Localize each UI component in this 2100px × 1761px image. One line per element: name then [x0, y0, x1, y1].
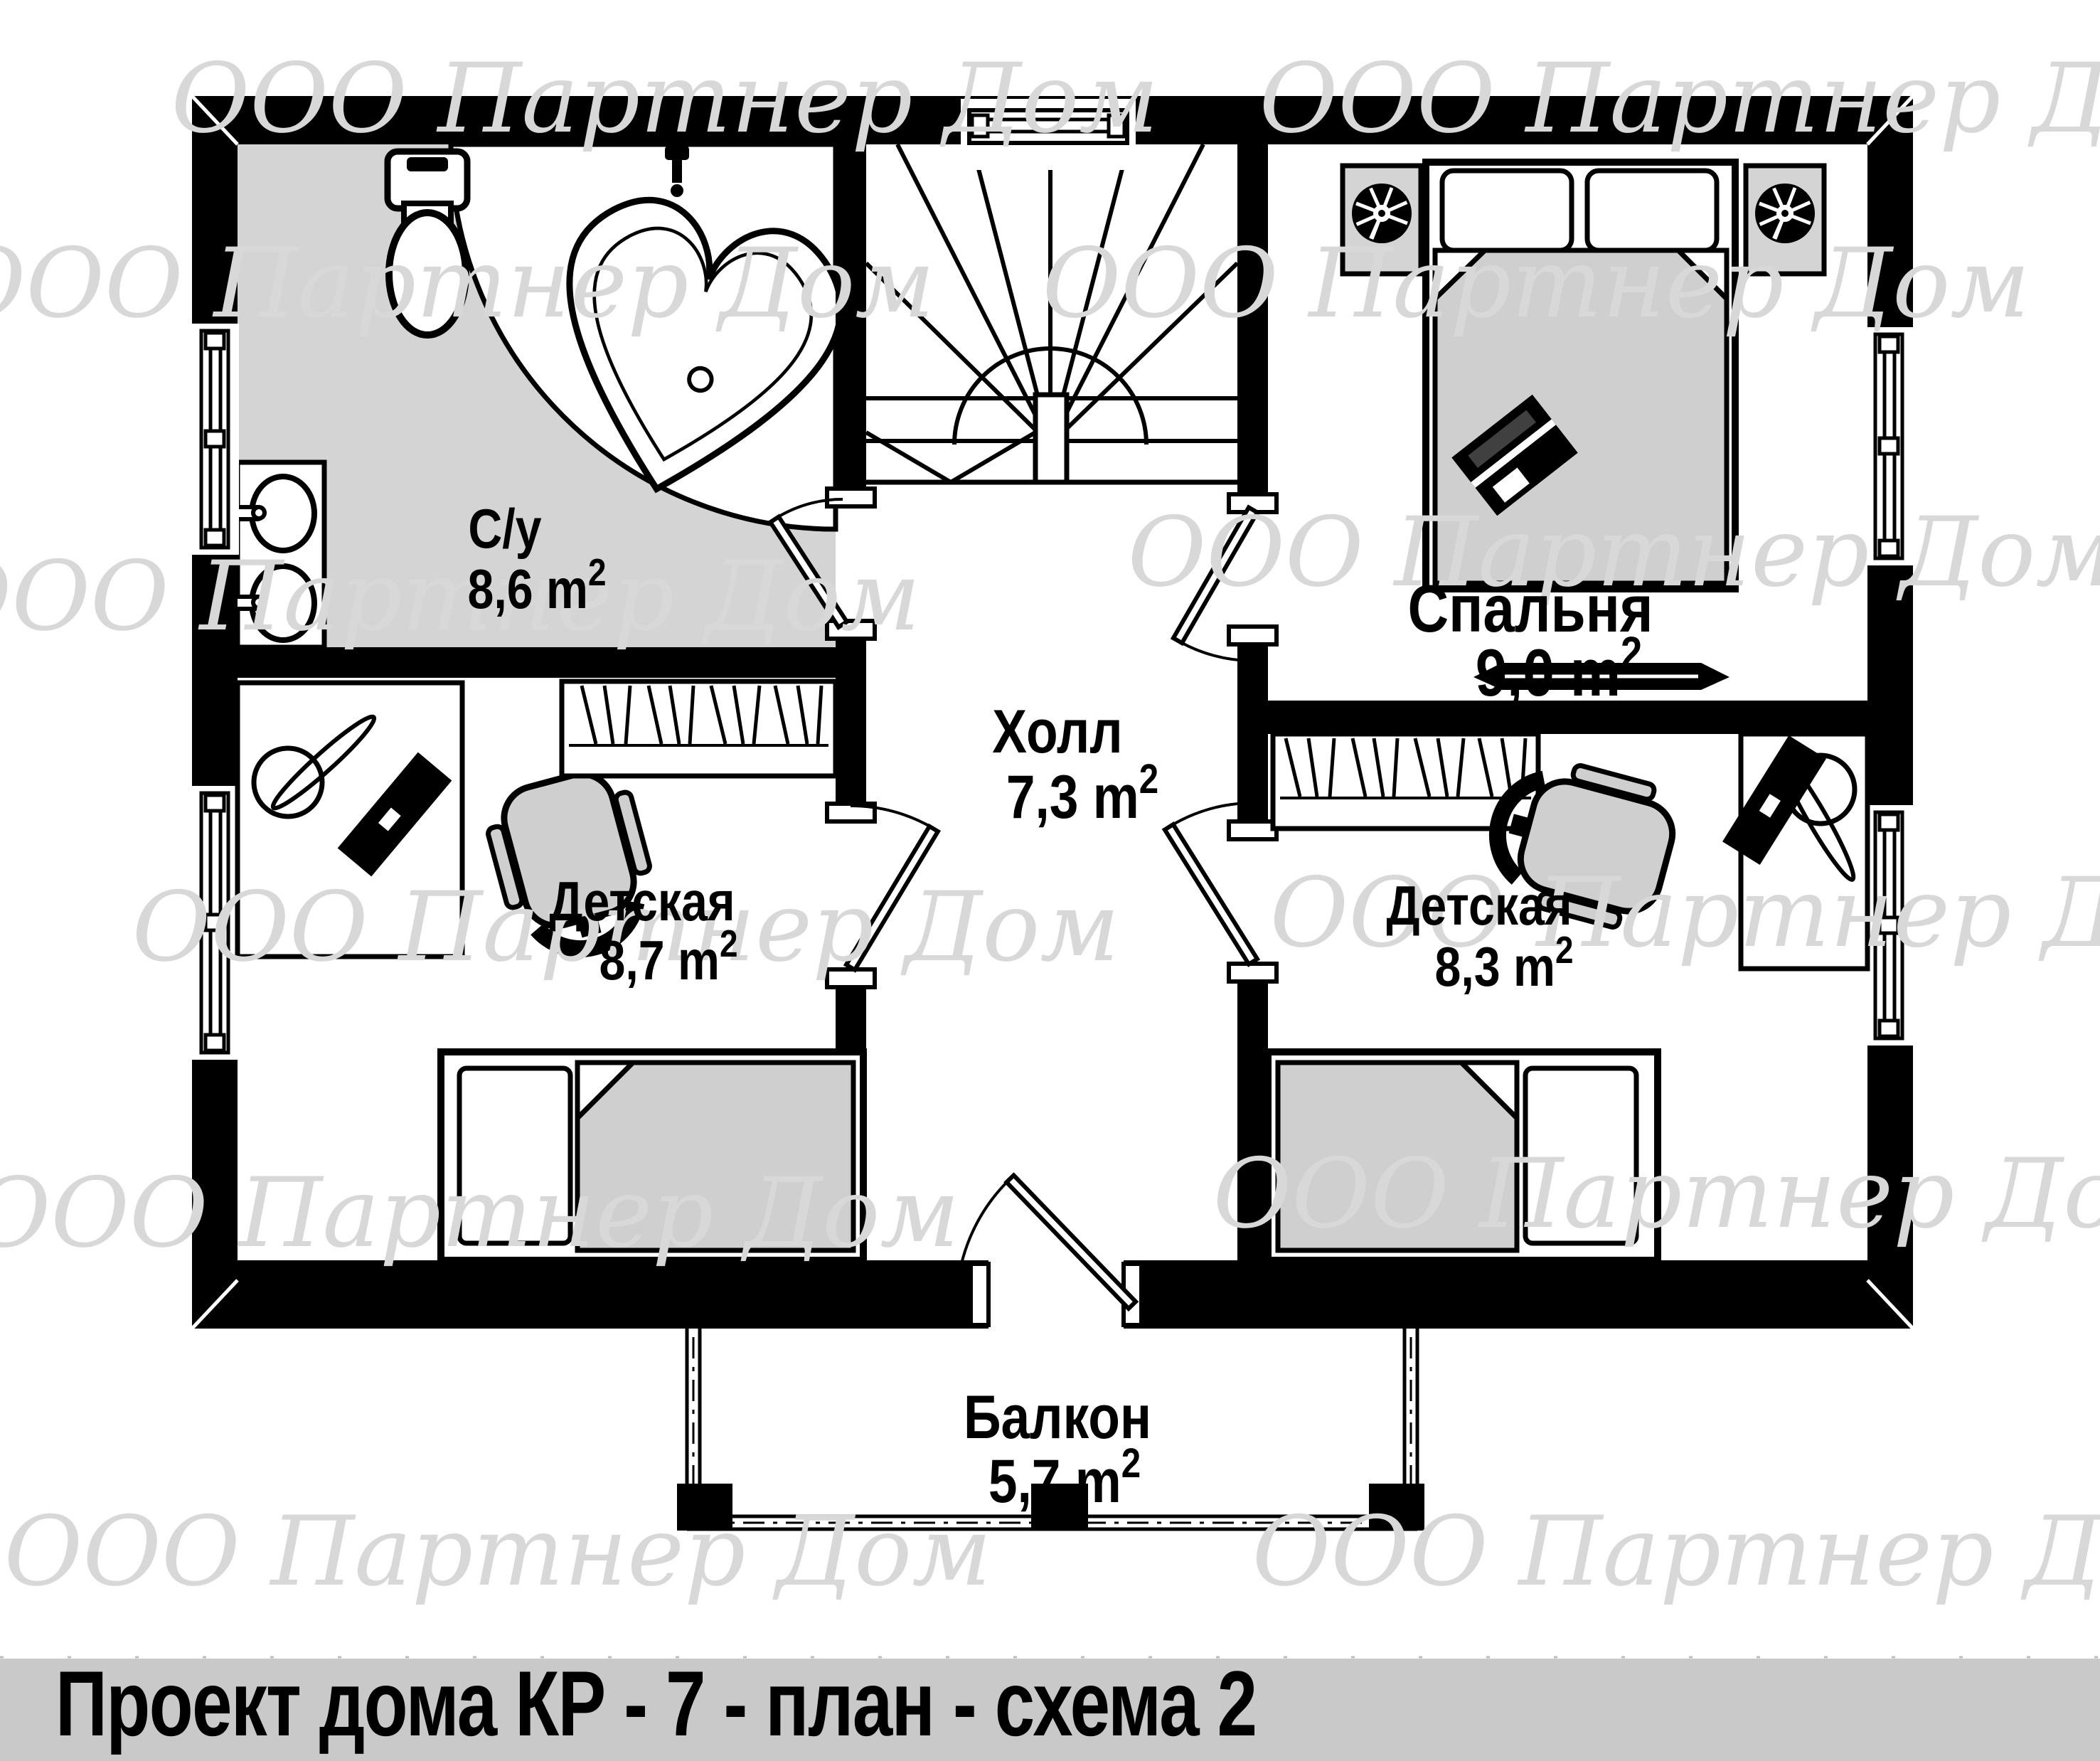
- watermark-text: ООО Партнер Дом: [1252, 1496, 2100, 1607]
- watermark-text: ООО Партнер Дом: [1213, 1138, 2100, 1250]
- watermark-text: ООО Партнер Дом: [1259, 43, 2100, 154]
- room-label-hall: Холл: [992, 697, 1122, 765]
- room-label-nursery-left: Детская: [549, 871, 735, 932]
- wardrobe-hangers-icon: [562, 681, 836, 776]
- room-area-hall: 7,3 m2: [1006, 756, 1158, 831]
- watermark-text: ООО Партнер Дом: [171, 43, 1159, 154]
- room-area-nursery-left: 8,7 m2: [599, 922, 737, 992]
- room-area-bathroom: 8,6 m2: [467, 551, 606, 621]
- watermark-text: ООО Партнер Дом: [0, 228, 934, 339]
- watermark-text: ООО Партнер Дом: [0, 1157, 959, 1269]
- watermark-text: ООО Партнер Дом: [1043, 228, 2030, 339]
- window-icon: [191, 324, 239, 555]
- title-text: Проект дома КР - 7 - план - схема 2: [55, 1651, 1256, 1755]
- watermark-text: ООО Партнер Дом: [4, 1496, 992, 1607]
- room-label-nursery-right: Детская: [1386, 875, 1572, 937]
- room-area-balcony: 5,7 m2: [988, 1440, 1141, 1515]
- room-label-bathroom: С/у: [468, 498, 541, 560]
- watermark-text: ООО Партнер Дом: [0, 541, 920, 652]
- floor-plan-page: ООО Партнер Дом ООО Партнер Дом ООО Парт…: [0, 0, 2100, 1761]
- title-bar: Проект дома КР - 7 - план - схема 2: [0, 1651, 2100, 1761]
- room-area-nursery-right: 8,3 m2: [1434, 929, 1573, 999]
- room-label-bedroom: Спальня: [1407, 572, 1653, 647]
- room-area-bedroom: 9,0 m2: [1476, 627, 1643, 711]
- floor-plan-svg: ООО Партнер Дом ООО Партнер Дом ООО Парт…: [0, 0, 2100, 1761]
